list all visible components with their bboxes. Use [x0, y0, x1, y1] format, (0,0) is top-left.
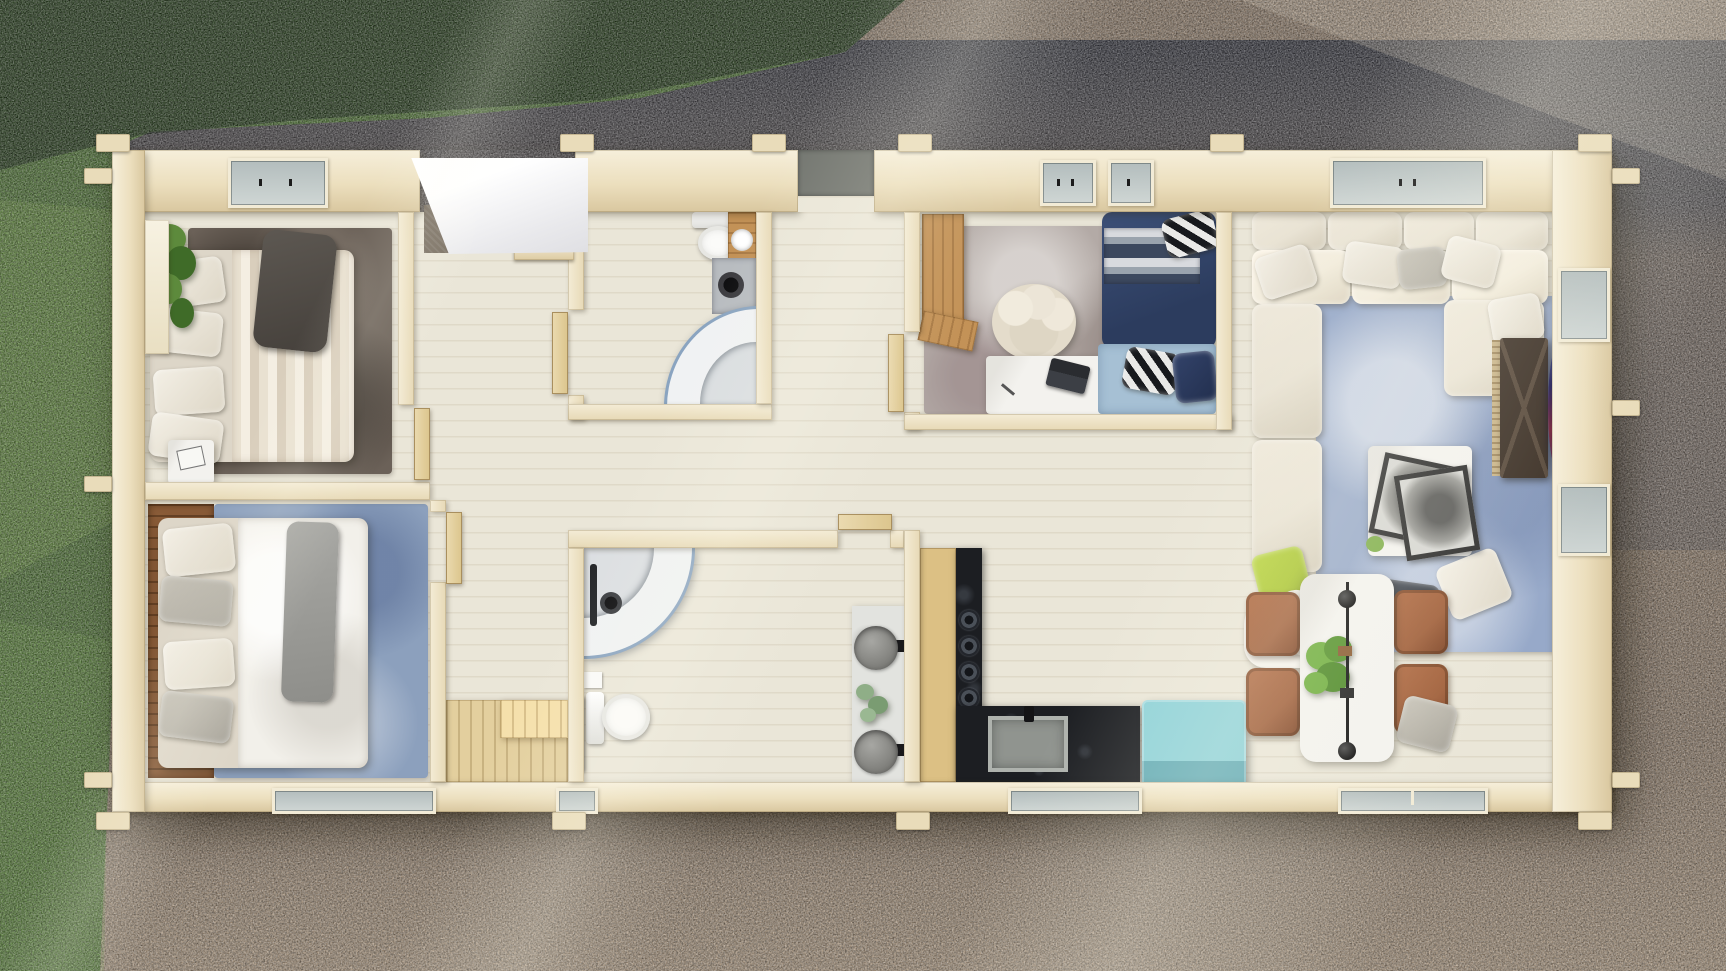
wall-study-a [904, 212, 920, 332]
pillow [1396, 246, 1448, 291]
log-end [1612, 772, 1640, 788]
pillow [162, 638, 235, 691]
log-end [84, 772, 112, 788]
dining-chair [1246, 668, 1300, 736]
dining-chair [1246, 592, 1300, 656]
pendant-rail [1346, 582, 1349, 756]
gas-hob [956, 608, 982, 716]
bedroom1-door-open [414, 408, 430, 480]
wall-bathroom-top-a [568, 530, 838, 548]
wall-right [1552, 150, 1612, 812]
round-basin [731, 229, 753, 251]
showerroom-door-open [552, 312, 568, 394]
wall-top-3 [874, 150, 1612, 212]
log-end [752, 134, 786, 152]
pendant-lamp [1338, 742, 1356, 760]
wall-bedroom2-a [430, 500, 446, 512]
stone-basin [854, 626, 898, 670]
navy-pillow [1172, 350, 1219, 404]
sofa-back-cushion [1252, 212, 1326, 250]
wall-bathroom-left [568, 548, 584, 782]
back-door-threshold [798, 196, 874, 212]
wall-showerroom-right [756, 212, 772, 404]
window-right-2 [1558, 484, 1610, 556]
back-door-mat [798, 150, 874, 196]
log-end [560, 134, 594, 152]
stone-basin [854, 730, 898, 774]
pendant-lamp [1338, 590, 1356, 608]
grey-throw [281, 521, 339, 703]
log-end [1210, 134, 1244, 152]
log-end [84, 168, 112, 184]
log-end [1612, 400, 1640, 416]
window-bedroom1 [228, 158, 328, 208]
wall-bedroom1 [398, 212, 414, 405]
toilet [602, 694, 650, 740]
headboard-shelf [145, 220, 169, 354]
eucalyptus-sprig [854, 680, 894, 726]
bedroom2-door-open [446, 512, 462, 584]
charcoal-throw [252, 228, 338, 353]
bathroom-door-open [838, 514, 892, 530]
tub-chair [992, 284, 1076, 360]
pillow [157, 690, 234, 744]
window-kitchen [1008, 788, 1142, 814]
stone-sink [988, 716, 1068, 772]
window-dining [1338, 788, 1488, 814]
timber-desk [922, 214, 964, 326]
wall-bathroom-top-b [890, 530, 904, 548]
timber-platform-step [500, 700, 568, 738]
tall-timber-cabinet [920, 548, 956, 782]
pillow [162, 522, 237, 577]
rain-shower-head [718, 272, 744, 298]
pendant-fixture [1340, 688, 1354, 698]
striped-pillow [1121, 346, 1181, 397]
wall-left [112, 150, 145, 812]
green-leaf [1366, 536, 1384, 552]
study-door-open [888, 334, 904, 412]
toilet-roll-holder [584, 672, 602, 688]
floor-plan-render [0, 0, 1726, 971]
log-end [552, 812, 586, 830]
window-right-1 [1558, 268, 1610, 342]
pillow [158, 575, 234, 627]
window-bedroom2 [272, 788, 436, 814]
wall-showerroom-bottom [568, 404, 772, 420]
shower-pipe [590, 564, 597, 626]
pendant-wood-block [1338, 646, 1352, 656]
log-end [96, 812, 130, 830]
log-end [84, 476, 112, 492]
wall-between-bedrooms [145, 482, 430, 500]
dining-chair [1394, 590, 1448, 654]
turquoise-chest [1142, 700, 1246, 790]
wall-top-2 [575, 150, 798, 212]
pillow [1341, 240, 1404, 290]
sofa-arm-cushion [1252, 304, 1322, 438]
window-living [1330, 158, 1486, 208]
wall-kitchen [904, 530, 920, 782]
wall-study-bottom [904, 414, 1232, 430]
wall-study-right [1216, 212, 1232, 430]
tv-bench-edge [1492, 340, 1500, 476]
log-end [1578, 134, 1612, 152]
log-end [96, 134, 130, 152]
log-end [898, 134, 932, 152]
window-study-2 [1108, 160, 1154, 206]
pillow [152, 366, 225, 417]
tv-sideboard [1500, 338, 1548, 478]
sink-tap [1024, 706, 1034, 722]
log-end [1578, 812, 1612, 830]
window-bathroom [556, 788, 598, 814]
framed-artwork [1394, 465, 1481, 562]
wall-bedroom2-b [430, 582, 446, 782]
log-end [896, 812, 930, 830]
log-end [1612, 168, 1640, 184]
window-study-1 [1040, 160, 1096, 206]
shower-head [600, 592, 622, 614]
